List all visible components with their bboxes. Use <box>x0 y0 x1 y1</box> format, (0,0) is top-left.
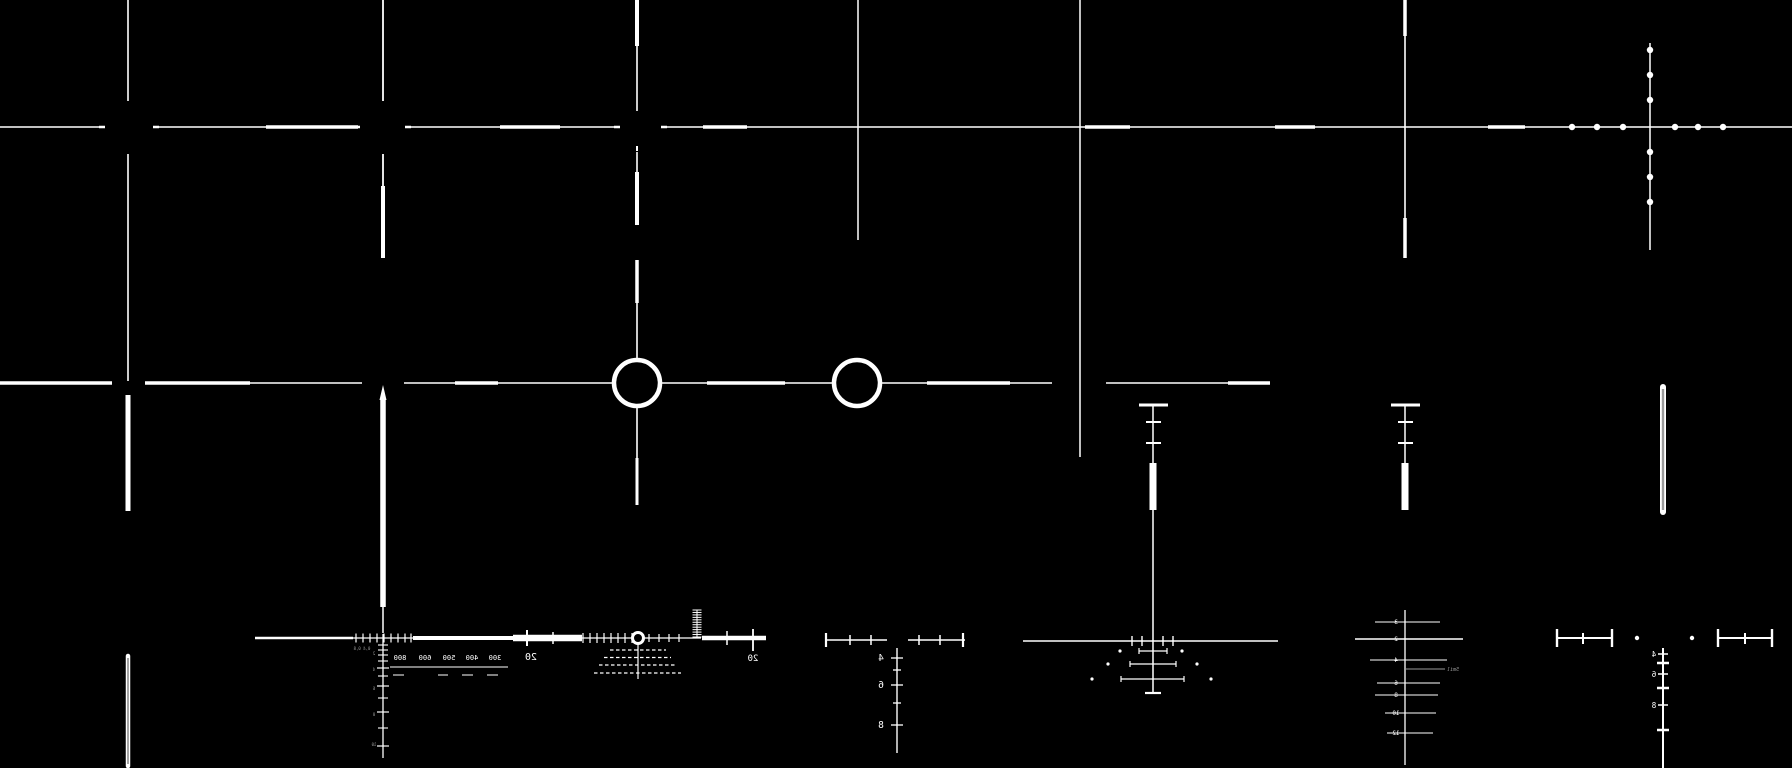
reticle-label: 2 <box>1394 636 1398 643</box>
reticle-christmas-tree-ring-reticle: 20 <box>582 610 766 679</box>
reticle-sprite-sheet: 3246810125mil0,4 0,820246810800600500400… <box>0 0 1792 768</box>
reticle-label: 4 <box>1651 650 1656 659</box>
reticle-label: 4 <box>1394 657 1398 664</box>
reticle-label: 12 <box>1392 730 1400 737</box>
reticle-label: 4 <box>372 667 375 672</box>
reticle-sheet-canvas: 3246810125mil0,4 0,820246810800600500400… <box>0 0 1792 768</box>
reticle-label: 8 <box>1651 701 1656 710</box>
reticle-cross-arrow-post <box>380 0 387 633</box>
reticle-label: 5mil <box>1447 667 1459 673</box>
reticle-label: 0,4 0,8 <box>353 646 370 651</box>
reticle-label: 6 <box>1651 670 1656 679</box>
reticle-mil-hash-bdc-reticle: 468 <box>825 633 965 753</box>
reticle-mildot-cross <box>1569 43 1726 250</box>
reticle-label: 10 <box>371 742 376 747</box>
reticle-label: 6 <box>372 686 375 691</box>
reticle-label: 8 <box>372 712 375 717</box>
reticle-label: 3 <box>1394 619 1398 626</box>
reticle-label: 400 <box>466 654 479 662</box>
reticle-label: 20 <box>748 654 759 664</box>
reticle-label: 6 <box>1394 680 1398 687</box>
reticle-label: 8 <box>1394 692 1398 699</box>
reticle-label: 10 <box>1392 710 1400 717</box>
reticle-bdc-ladder-tree: 3246810125mil <box>1355 0 1463 765</box>
reticle-label: 600 <box>419 654 432 662</box>
reticle-label: 300 <box>489 654 502 662</box>
reticle-label: 2 <box>372 651 375 656</box>
reticle-cross-duplex-circle <box>614 0 660 505</box>
reticle-label: 800 <box>394 654 407 662</box>
reticle-label: 6 <box>878 680 884 691</box>
reticle-acog-chevron-bdc <box>1023 405 1278 693</box>
reticle-label: 20 <box>525 652 537 663</box>
reticle-circle-reticle-plain <box>834 0 880 406</box>
reticle-bracket-dot-bdc-reticle: 468 <box>1556 387 1773 768</box>
reticle-label: 500 <box>443 654 456 662</box>
reticle-label: 8 <box>878 720 884 731</box>
reticle-pso-rangefinder-reticle: 0,4 0,820246810800600500400300 <box>255 630 582 758</box>
reticle-label: 4 <box>878 653 884 664</box>
